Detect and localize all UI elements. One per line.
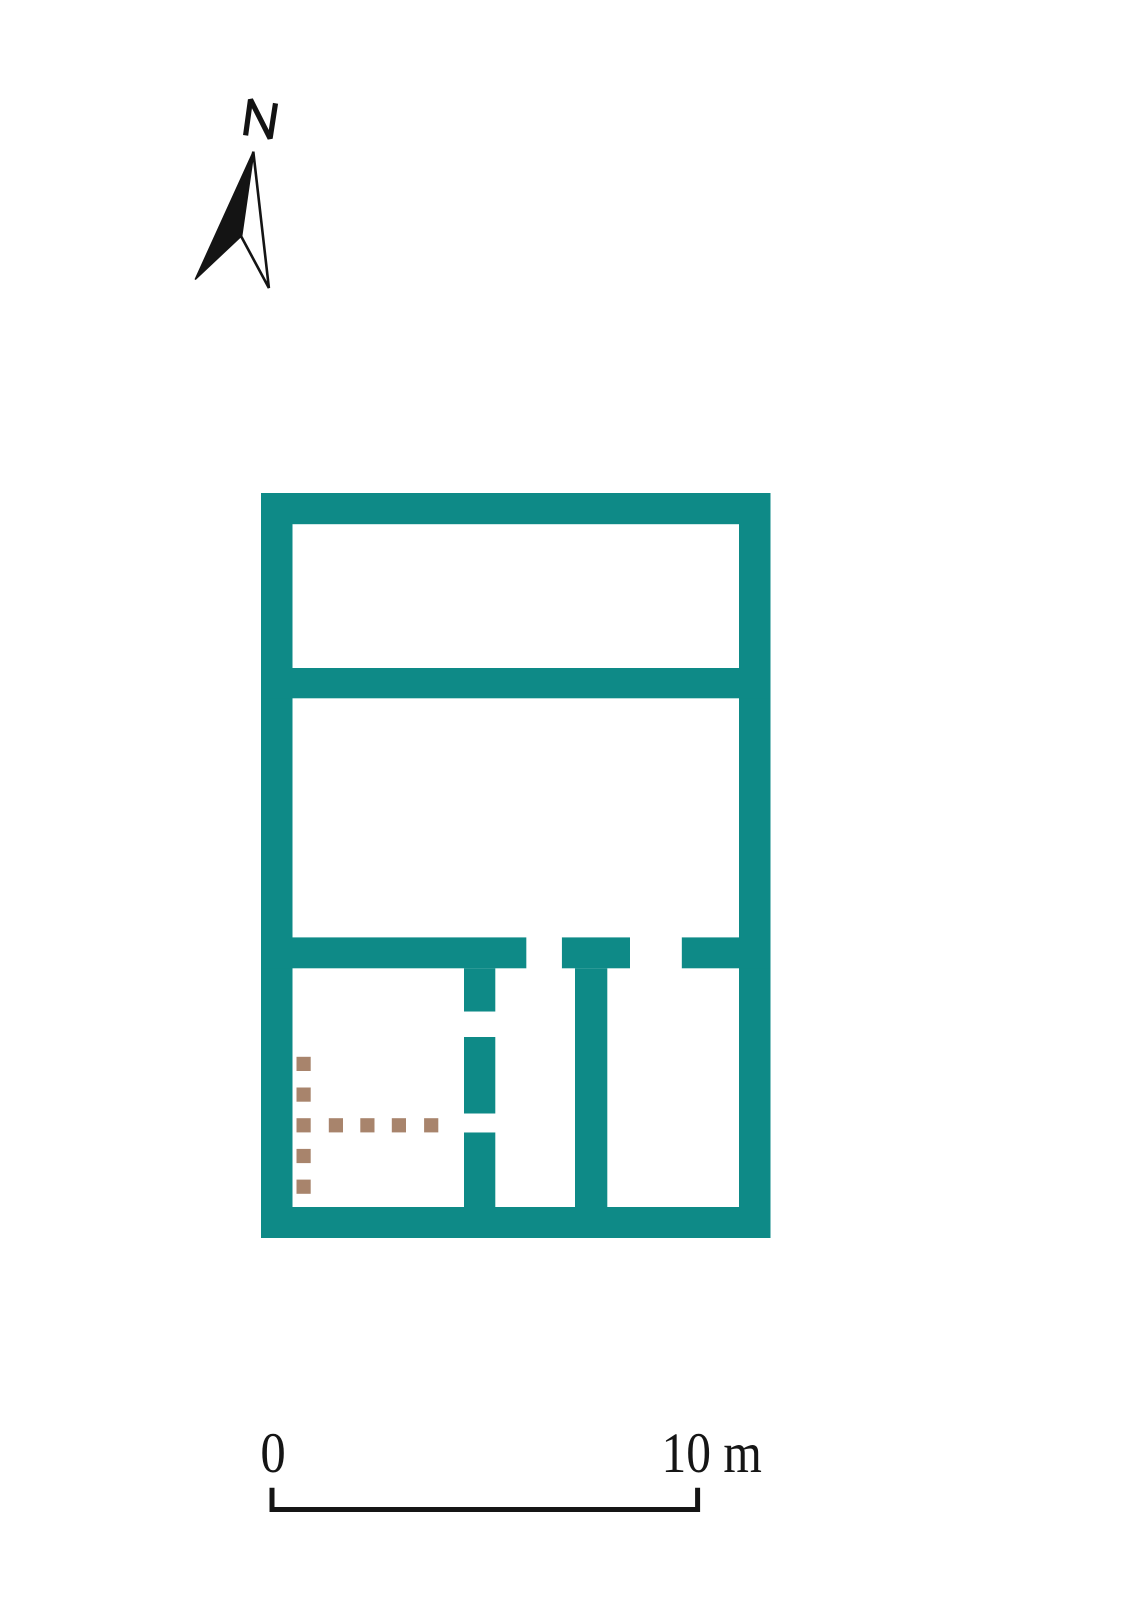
svg-text:10 m: 10 m [662, 1421, 762, 1485]
svg-text:0: 0 [260, 1421, 285, 1484]
